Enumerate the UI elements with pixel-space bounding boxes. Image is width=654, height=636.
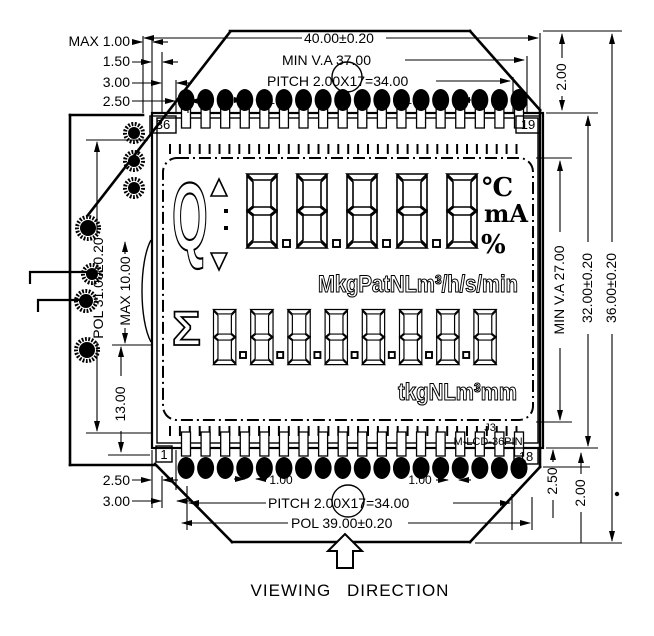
seven-segment-digit (362, 309, 384, 364)
lcd-content: Q ℃ mA % MkgPatNLm³/h/s/min Σ tkgNLm³mm (172, 164, 528, 406)
dim-pin-width-top-1: 1.00 (268, 93, 292, 107)
dim-pin-width-top-2: 1.00 (405, 93, 429, 107)
pin-stub (299, 432, 308, 456)
pin-stub (417, 432, 426, 456)
pin (217, 457, 234, 479)
dim-va-width: MIN V.A 37.00 (282, 52, 371, 68)
pin-stub (279, 432, 288, 456)
down-triangle-icon (211, 253, 227, 270)
decimal-point (240, 352, 246, 358)
pin (373, 89, 390, 111)
pin (334, 457, 351, 479)
dim-1-50: 1.50 (103, 53, 130, 69)
pin (471, 457, 488, 479)
pin (452, 457, 469, 479)
pin-stub (397, 432, 406, 456)
stray-dot (615, 492, 619, 496)
seven-segment-digit (437, 309, 459, 364)
contact-hole (128, 155, 140, 167)
seven-segment-digit (447, 174, 477, 248)
dim-3-00-bottom: 3.00 (103, 493, 130, 509)
pin (236, 457, 253, 479)
pin (354, 457, 371, 479)
dim-max-1-00: MAX 1.00 (69, 33, 131, 49)
decimal-point (426, 352, 432, 358)
dim-pol-width: POL 39.00±0.20 (291, 515, 393, 531)
seven-segment-digit (297, 174, 327, 248)
pin (491, 457, 508, 479)
seven-segment-digit (247, 174, 277, 248)
pin-number-top-right: 19 (521, 117, 535, 132)
seven-segment-digit (399, 309, 421, 364)
pin (295, 457, 312, 479)
dim-glass-height: 32.00±0.20 (579, 253, 595, 323)
decimal-point (389, 352, 395, 358)
row2-units-label: tkgNLm³mm (398, 379, 517, 406)
viewing-direction-arrow-icon (328, 534, 362, 568)
pin-stub (319, 432, 328, 456)
dim-2-50-bottom-right: 2.50 (544, 467, 560, 494)
pin-stub (377, 432, 386, 456)
dim-2-00-bottom-right: 2.00 (572, 479, 588, 506)
pin (197, 89, 214, 111)
seven-segment-row-1 (247, 174, 477, 248)
seven-segment-digit (251, 309, 273, 364)
dim-3-00: 3.00 (103, 74, 130, 90)
pin (178, 457, 195, 479)
pin (295, 89, 312, 111)
connector-part-number: M-LCD-36PIN (453, 436, 522, 448)
percent-unit: % (481, 230, 506, 260)
pin-stub (221, 432, 230, 456)
connector-ref: J3 (484, 422, 496, 434)
pin-stub (201, 432, 210, 456)
dim-2-50-bottom: 2.50 (103, 472, 130, 488)
contact-hole (80, 220, 96, 236)
dim-13-00: 13.00 (112, 386, 128, 421)
pin-row-top (178, 89, 528, 128)
pin-stub (182, 432, 191, 456)
up-triangle-icon (211, 179, 227, 196)
dim-max-10-00: MAX 10.00 (117, 256, 133, 325)
pin (471, 89, 488, 111)
pin (217, 89, 234, 111)
pin (373, 457, 390, 479)
seven-segment-digit (474, 309, 496, 364)
decimal-point (314, 352, 320, 358)
pin-stub (436, 432, 445, 456)
pin (491, 89, 508, 111)
pin-number-bottom-left: 1 (160, 447, 167, 462)
pin-stub (358, 432, 367, 456)
dim-2-00-top-right: 2.00 (553, 63, 569, 90)
seven-segment-row-2 (213, 309, 496, 364)
viewing-direction: VIEWING DIRECTION (251, 534, 450, 600)
dim-overall-height: 36.00±0.20 (603, 253, 619, 323)
pin-number-bottom-right: 18 (519, 449, 533, 464)
dim-overall-width: 40.00±0.20 (304, 30, 374, 46)
dim-va-height: MIN V.A 27.00 (551, 245, 567, 334)
decimal-point (283, 240, 290, 247)
dim-2-50: 2.50 (103, 93, 130, 109)
pin (178, 89, 195, 111)
pin-bend-profile (142, 240, 151, 342)
colon-dot (224, 209, 228, 213)
pin (197, 457, 214, 479)
sum-symbol-sigma: Σ (172, 303, 201, 356)
dim-pitch-bottom: PITCH 2.00X17=34.00 (268, 495, 409, 511)
flow-symbol-q: Q (172, 164, 208, 271)
dim-pin-width-bottom-1: 1.00 (269, 473, 293, 487)
lcd-outline-drawing: 36 19 1 18 Q ℃ mA % MkgPatNLm³/h/s/min Σ… (0, 0, 654, 631)
pin (315, 89, 332, 111)
seven-segment-digit (347, 174, 377, 248)
decimal-point (352, 352, 358, 358)
dim-pitch-top: PITCH 2.00X17=34.00 (267, 73, 408, 89)
milliamp-unit: mA (484, 199, 528, 228)
decimal-point (333, 240, 340, 247)
seven-segment-digit (213, 309, 235, 364)
pin (432, 457, 449, 479)
viewing-direction-label: VIEWING DIRECTION (251, 581, 450, 600)
pin-stub (240, 432, 249, 456)
pin (354, 89, 371, 111)
seven-segment-digit (288, 309, 310, 364)
decimal-point (277, 352, 283, 358)
contact-hole (128, 182, 140, 194)
colon-dot (224, 226, 228, 230)
decimal-point (383, 240, 390, 247)
dim-pin-width-bottom-2: 1.00 (408, 473, 432, 487)
pin-number-top-left: 36 (156, 117, 170, 132)
contact-hole (128, 127, 140, 139)
decimal-point (433, 240, 440, 247)
dim-pol-height: POL 31.00±0.20 (90, 237, 106, 339)
contact-hole (79, 342, 95, 358)
pin-stub (338, 432, 347, 456)
seven-segment-digit (397, 174, 427, 248)
seven-segment-digit (325, 309, 347, 364)
row1-units-label: MkgPatNLm³/h/s/min (318, 271, 518, 298)
drawing-canvas: 36 19 1 18 Q ℃ mA % MkgPatNLm³/h/s/min Σ… (0, 0, 654, 631)
decimal-point (463, 352, 469, 358)
pin-stub (260, 432, 269, 456)
pin (315, 457, 332, 479)
